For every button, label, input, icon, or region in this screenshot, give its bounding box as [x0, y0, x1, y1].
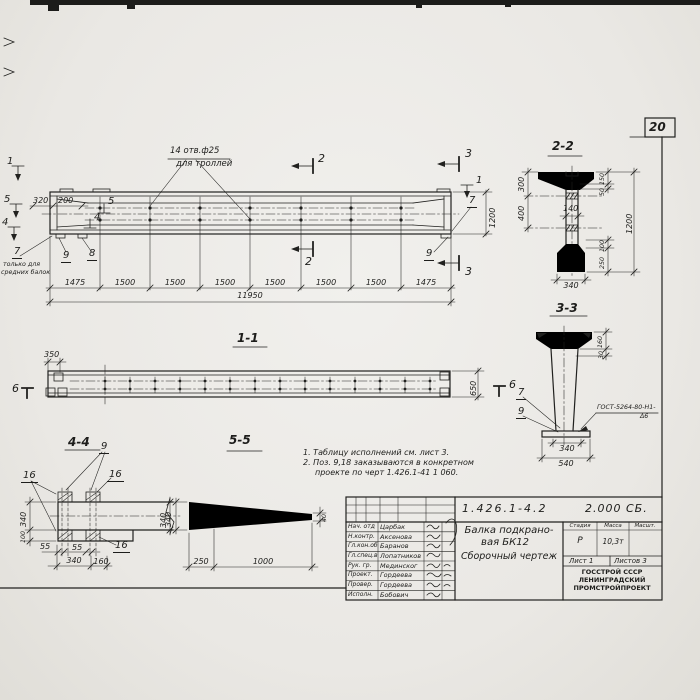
dim-100: 100	[600, 240, 606, 252]
mass-value: 10,3т	[602, 538, 623, 546]
dim-250: 250	[600, 257, 606, 269]
dim-160: 160	[93, 558, 108, 566]
scan-mark-left-1	[4, 38, 14, 46]
dim-160: 160	[598, 336, 604, 348]
dim-300: 300	[518, 177, 526, 192]
drawing-title-line1: Балка подкрано-	[464, 526, 553, 536]
pos-8: 8	[87, 249, 97, 261]
pos-4-inner: 4	[92, 213, 102, 224]
dim-340-44-bottom: 340	[66, 557, 81, 565]
role-1: Н.контр.	[348, 534, 375, 540]
dim-segment-7: 1500	[366, 279, 386, 287]
dim-140: 140	[563, 205, 578, 213]
dim-segment-4: 1500	[215, 279, 235, 287]
role-3: Гл.спец.в	[348, 553, 378, 559]
title-2-2: 2-2	[552, 140, 574, 152]
pos-7-right: 7	[467, 196, 477, 208]
dim-340-55: 340	[165, 512, 173, 527]
pos-1-left: 1	[5, 157, 15, 168]
sheets-label: Листов 3	[614, 558, 647, 565]
section22-bottom-block	[557, 244, 585, 272]
pos-5-inner: 5	[106, 197, 116, 208]
dim-340-33: 340	[559, 445, 574, 453]
dim-1200-22: 1200	[626, 214, 634, 234]
weld-note-line1: ГОСТ-5264-80-Н1-	[597, 405, 656, 411]
dim-320: 320	[33, 197, 48, 205]
dim-overall: 11950	[237, 292, 262, 300]
role-0: Нач. отд	[348, 524, 375, 530]
pos-16-c: 16	[113, 541, 130, 553]
dim-1200-main: 1200	[489, 208, 497, 228]
dim-250: 250	[193, 558, 208, 566]
sheet-label: Лист 1	[569, 558, 593, 565]
pos-7-note-line1: только для	[3, 262, 40, 268]
doc-type: 2.000 СБ.	[585, 503, 648, 514]
pos-9-44: 9	[99, 442, 109, 454]
org-line1: ГОССТРОЙ СССР	[582, 569, 643, 576]
role-2: Гл.кон.об	[348, 543, 378, 549]
cut-2-bottom: 2	[303, 256, 314, 268]
holes-note-line2: для троллей	[176, 160, 232, 169]
dim-segment-8: 1475	[416, 279, 436, 287]
dim-1000: 1000	[253, 558, 273, 566]
cut-6-left: 6	[10, 383, 21, 395]
doc-designation: 1.426.1-4.2	[462, 503, 547, 514]
dim-40: 40	[322, 514, 328, 522]
name-4: Мединског	[380, 563, 417, 570]
role-7: Исполн.	[348, 592, 373, 598]
dim-100-44: 100	[21, 531, 27, 543]
dim-340-44-left: 340	[20, 512, 28, 527]
dim-segment-2: 1500	[115, 279, 135, 287]
weld-note-line2: Δ6	[640, 414, 648, 420]
drawing-title-line2: вая БК12	[481, 538, 529, 548]
drawing-sheet: 20 14 отв.ф25 для троллей 320 200 1 5 4 …	[0, 0, 700, 700]
scan-mark-left-2	[4, 68, 14, 76]
role-6: Провер.	[348, 582, 373, 588]
title-4-4: 4-4	[68, 436, 90, 448]
name-5: Гордеева	[380, 572, 412, 579]
role-5: Проект.	[348, 572, 373, 578]
dim-50: 50	[600, 188, 606, 196]
holes-note-line1: 14 отв.ф25	[170, 147, 219, 156]
title-5-5: 5-5	[229, 434, 251, 446]
pos-16-b: 16	[107, 470, 124, 482]
pos-7-33: 7	[516, 388, 526, 400]
name-1: Аксенова	[380, 534, 412, 541]
stage-value: Р	[577, 537, 582, 546]
pos-5-left: 5	[2, 195, 12, 206]
dim-400: 400	[518, 206, 526, 221]
pos-7-note-line2: средних балок	[1, 270, 50, 276]
dim-segment-3: 1500	[165, 279, 185, 287]
plan-bolts	[104, 377, 432, 393]
title-1-1: 1-1	[237, 332, 259, 344]
dim-30: 30	[599, 351, 605, 359]
dim-55-b: 55	[72, 544, 82, 552]
cut-3-bottom: 3	[463, 266, 474, 278]
name-0: Царбак	[380, 524, 405, 531]
dim-650: 650	[470, 381, 478, 396]
pos-1-right: 1	[474, 176, 484, 187]
pos-16-a: 16	[21, 471, 38, 483]
name-2: Баранов	[380, 543, 409, 550]
note-line1: 1. Таблицу исполнений см. лист 3.	[303, 449, 449, 457]
org-line2: ЛЕНИНГРАДСКИЙ	[579, 577, 646, 584]
col-stage: Стадия	[569, 524, 590, 530]
dim-200: 200	[58, 197, 73, 205]
pos-4-left: 4	[0, 218, 10, 229]
pos-9-33: 9	[516, 407, 526, 419]
section55-plate	[189, 502, 312, 530]
page-number: 20	[649, 121, 666, 133]
name-3: Лопатников	[380, 553, 421, 560]
note-line3: проекте по черт 1.426.1-41 1 060.	[315, 469, 458, 477]
dim-55-a: 55	[40, 543, 50, 551]
dim-150: 150	[600, 173, 606, 185]
note-line2: 2. Поз. 9,18 заказываются в конкретном	[303, 459, 474, 467]
dim-540: 540	[558, 460, 573, 468]
dim-segment-6: 1500	[316, 279, 336, 287]
pos-9-right: 9	[424, 249, 434, 261]
pos-7: 7	[12, 247, 22, 259]
name-7: Бобович	[380, 592, 408, 599]
cut-2-top: 2	[316, 153, 327, 165]
section44-band	[58, 502, 173, 541]
dim-segment-5: 1500	[265, 279, 285, 287]
pos-9-left: 9	[61, 251, 71, 263]
col-mass: Масса	[604, 524, 622, 530]
org-line3: ПРОМСТРОЙПРОЕКТ	[573, 585, 650, 592]
dim-segment-1: 1475	[65, 279, 85, 287]
cut-mark-6	[22, 386, 505, 398]
name-6: Гордеева	[380, 582, 412, 589]
dim-350: 350	[44, 351, 59, 359]
section33-base-plate	[542, 431, 590, 437]
title-3-3: 3-3	[556, 302, 578, 314]
drawing-title-line3: Сборочный чертеж	[461, 552, 557, 562]
role-4: Рук. гр.	[348, 563, 371, 569]
col-scale: Масшт.	[634, 524, 655, 530]
cut-3-top: 3	[463, 148, 474, 160]
dim-340-22: 340	[563, 282, 578, 290]
